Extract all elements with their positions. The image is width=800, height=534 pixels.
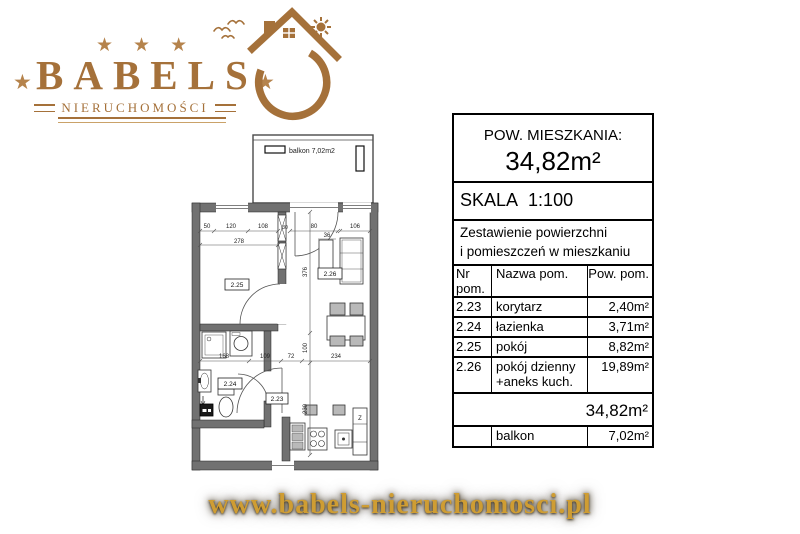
room-nr: 2.26 <box>454 358 492 392</box>
couch <box>340 238 363 284</box>
room-nr: 2.23 <box>454 298 492 316</box>
room-name: balkon <box>492 427 588 446</box>
stove <box>308 428 327 450</box>
dim-top1: 50 <box>204 224 211 230</box>
room-label-2-26: 2.26 <box>324 271 337 278</box>
birds-icon <box>214 21 244 38</box>
dim-mid2: 109 <box>260 354 271 360</box>
room-area: 2,40m² <box>588 298 652 316</box>
swoosh-icon <box>259 53 327 116</box>
balcony: balkon 7,02m2 <box>253 135 373 203</box>
balcony-fixture <box>356 146 364 171</box>
room-name: łazienka <box>492 318 588 336</box>
star-icon: ★ <box>13 70 32 95</box>
area-label: POW. MIESZKANIA: <box>454 127 652 144</box>
room-name: pokój <box>492 338 588 356</box>
col-header-name: Nazwa pom. <box>492 266 588 296</box>
room-name: korytarz <box>492 298 588 316</box>
footer: www.babels-nieruchomosci.pl <box>0 482 800 528</box>
washing-machine <box>230 331 252 356</box>
room-name: pokój dzienny +aneks kuch. <box>492 358 588 392</box>
col-header-nr: Nr pom. <box>454 266 492 296</box>
roof-icon <box>252 12 337 57</box>
dim-vert1: 376 <box>303 266 309 277</box>
info-panel: POW. MIESZKANIA: 34,82m² SKALA 1:100 Zes… <box>452 113 654 448</box>
scale-label: SKALA 1:100 <box>454 181 652 219</box>
summary-block: Zestawienie powierzchni i pomieszczeń w … <box>454 219 652 264</box>
dim-top-total: 278 <box>234 239 245 245</box>
dim-mid3: 72 <box>288 354 295 360</box>
summary-line1: Zestawienie powierzchni <box>460 224 652 243</box>
dining-chair <box>350 336 363 346</box>
fridge-label: Z <box>358 416 362 422</box>
dining-chair <box>330 336 345 346</box>
balcony-label: balkon 7,02m2 <box>289 148 335 155</box>
dim-top2: 120 <box>226 224 237 230</box>
table-header-row: Nr pom. Nazwa pom. Pow. pom. <box>454 264 652 296</box>
dim-vert2: 100 <box>303 342 309 353</box>
bathroom-fixtures <box>198 331 252 417</box>
area-value: 34,82m² <box>454 146 652 177</box>
flyer: { "logo": { "brand": "BABELS", "subtitle… <box>0 0 800 534</box>
dim-window-right: 106 <box>350 224 361 230</box>
table-row: 2.26 pokój dzienny +aneks kuch. 19,89m² <box>454 356 652 392</box>
footer-link[interactable]: www.babels-nieruchomosci.pl <box>208 489 591 520</box>
kitchen-counter: Z <box>353 408 367 455</box>
room-nr: 2.24 <box>454 318 492 336</box>
room-area: 19,89m² <box>588 358 652 392</box>
room-area: 7,02m² <box>588 427 652 446</box>
kitchen: Z <box>290 405 367 455</box>
house-logo-icon <box>200 4 350 126</box>
dining-chair <box>330 303 345 315</box>
room-name-line1: pokój dzienny <box>496 359 587 374</box>
kitchen-sink <box>335 430 352 448</box>
room-nr <box>454 427 492 446</box>
utility-shaft <box>200 404 213 416</box>
toilet <box>218 389 234 417</box>
dim-mid4: 234 <box>331 354 342 360</box>
room-nr: 2.25 <box>454 338 492 356</box>
dim-mid1: 168 <box>219 354 230 360</box>
room-name-line2: +aneks kuch. <box>496 374 587 389</box>
kitchen-drawers <box>290 423 305 450</box>
door-opening <box>278 284 287 324</box>
dim-balcony-door: 80 <box>311 224 318 230</box>
col-header-area: Pow. pom. <box>588 266 652 296</box>
floor-plan: balkon 7,02m2 <box>188 112 380 474</box>
window-right <box>343 203 371 213</box>
legend-swatch <box>265 146 285 153</box>
dim-top3: 108 <box>258 224 269 230</box>
room-label-2-24: 2.24 <box>224 381 237 388</box>
room-label-2-25: 2.25 <box>231 282 244 289</box>
table-row: 2.24 łazienka 3,71m² <box>454 316 652 336</box>
balcony-door-opening <box>290 203 338 213</box>
dim-vert3: 230 <box>303 403 309 414</box>
table-row: 2.25 pokój 8,82m² <box>454 336 652 356</box>
decorative-rule <box>34 104 55 112</box>
dim-duct: 30 <box>282 225 288 231</box>
window-left <box>216 203 248 213</box>
living-room-furniture <box>319 238 365 346</box>
apartment-area-block: POW. MIESZKANIA: 34,82m² <box>454 115 652 181</box>
wardrobe <box>319 240 333 270</box>
stool <box>333 405 345 415</box>
room-label-2-23: 2.23 <box>271 396 284 403</box>
dining-chair <box>350 303 363 315</box>
table-row: 2.23 korytarz 2,40m² <box>454 296 652 316</box>
dim-wardrobe: 36 <box>324 233 331 239</box>
summary-line2: i pomieszczeń w mieszkaniu <box>460 243 652 262</box>
room-area: 3,71m² <box>588 318 652 336</box>
balcony-row: balkon 7,02m² <box>454 425 652 446</box>
total-area-row: 34,82m² <box>454 392 652 425</box>
entry-opening <box>272 461 294 471</box>
brand-subtitle: NIERUCHOMOŚCI <box>61 100 208 116</box>
room-area: 8,82m² <box>588 338 652 356</box>
